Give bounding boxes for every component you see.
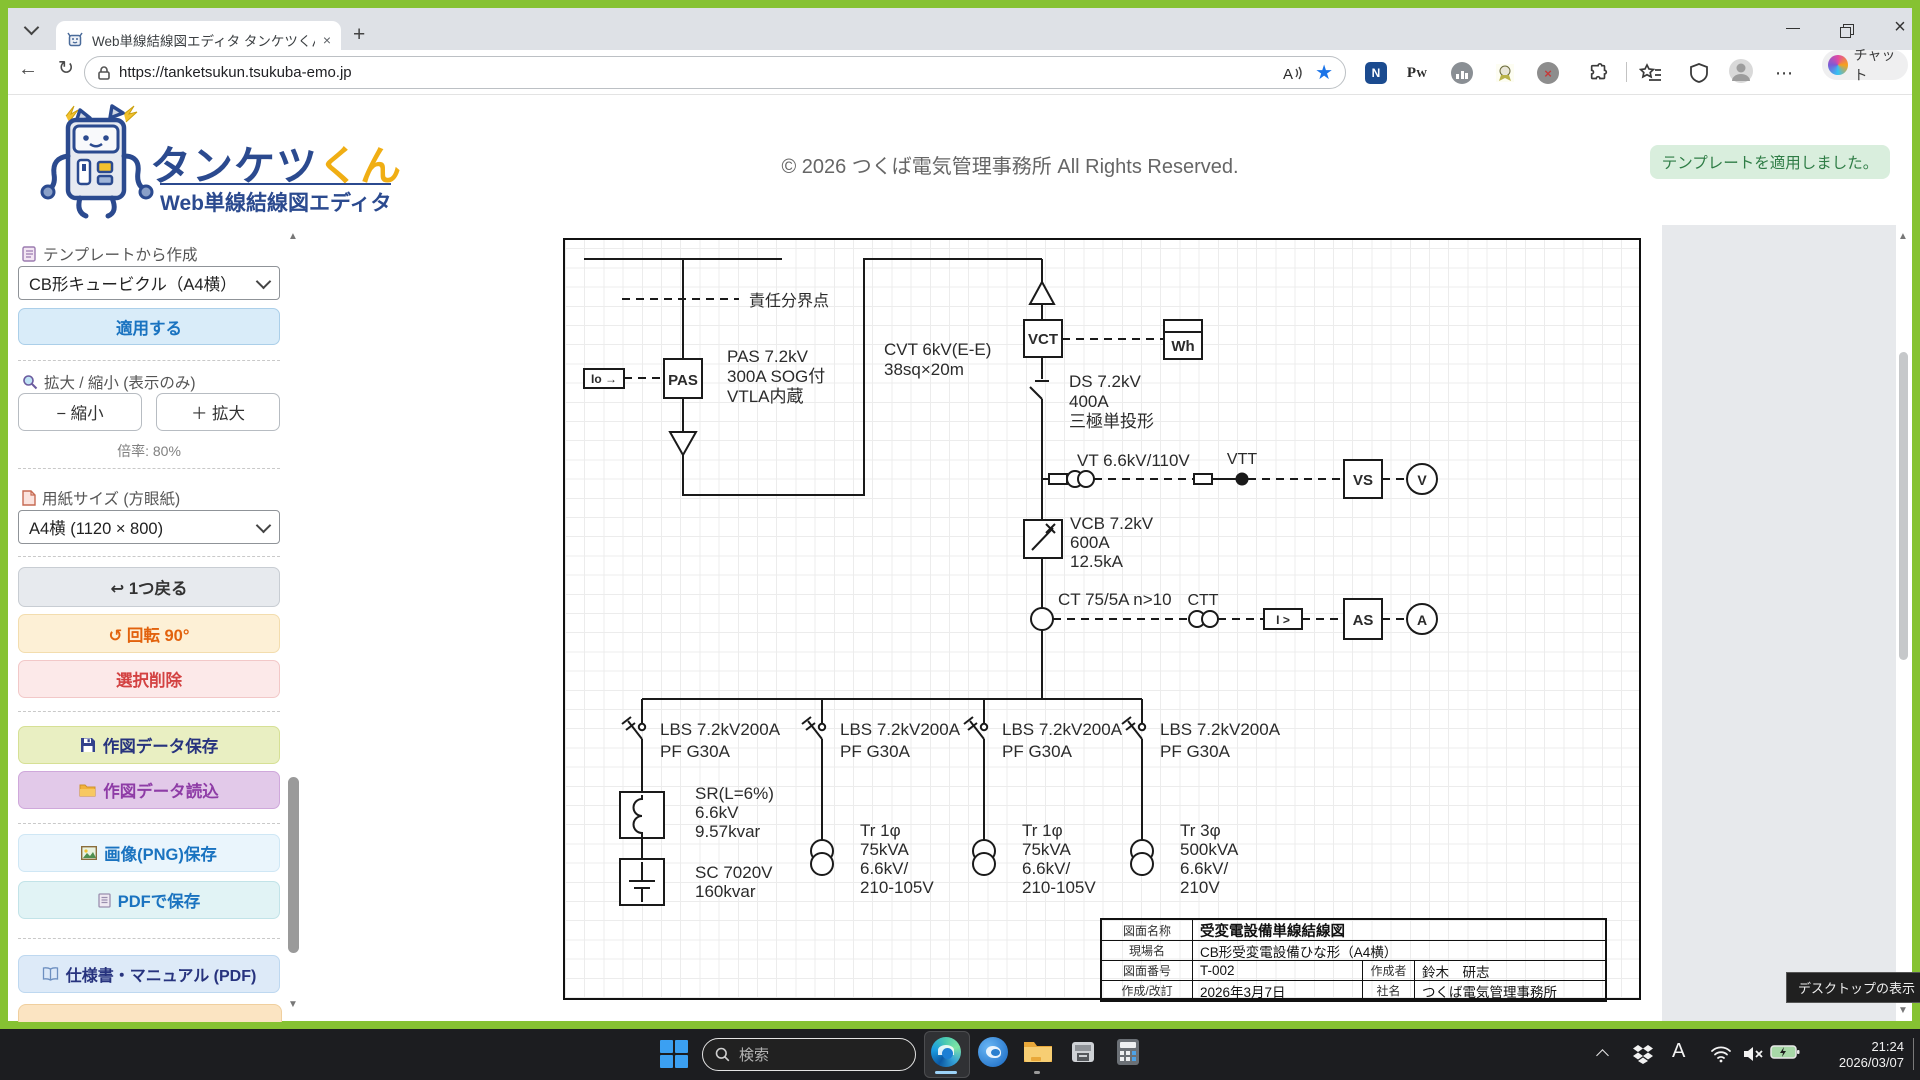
chevron-down-icon (256, 273, 272, 289)
clock-time: 21:24 (1812, 1039, 1904, 1055)
favorite-star-icon[interactable]: ★ (1315, 60, 1333, 85)
sc-spec: 160kvar (695, 882, 756, 901)
taskbar-thunderbird-icon[interactable] (978, 1037, 1008, 1067)
extensions-puzzle-icon[interactable] (1586, 60, 1612, 86)
drawing-title: 受変電設備単線結線図 (1192, 920, 1605, 940)
taskbar-calculator-icon[interactable] (1113, 1037, 1143, 1067)
magnifier-icon (22, 374, 38, 390)
tab-close-icon[interactable]: × (323, 32, 331, 48)
vcb-spec: VCB 7.2kV (1070, 514, 1154, 533)
pas-box-label: PAS (668, 372, 698, 389)
tr-spec: 6.6kV/ (1180, 859, 1228, 878)
lbs-label: LBS 7.2kV200A (660, 720, 781, 739)
canvas-outer-area (1662, 225, 1896, 1021)
divider (18, 468, 280, 469)
overcurrent-relay-label: I > (1276, 613, 1290, 627)
folder-icon (79, 783, 96, 797)
wifi-icon[interactable] (1710, 1045, 1732, 1068)
extension-blocker-icon[interactable]: × (1535, 60, 1561, 86)
ds-spec: 400A (1069, 392, 1109, 411)
url-text: https://tanketsukun.tsukuba-emo.jp (119, 64, 1281, 81)
zoom-section-label: 拡大 / 縮小 (表示のみ) (22, 371, 196, 393)
ds-spec: DS 7.2kV (1069, 372, 1141, 391)
title-block: 図面名称 受変電設備単線結線図 現場名 CB形受変電設備ひな形（A4横） 図面番… (1100, 918, 1607, 1002)
lbs-label: LBS 7.2kV200A (1002, 720, 1123, 739)
manual-button[interactable]: 仕様書・マニュアル (PDF) (18, 955, 280, 993)
minimize-button[interactable] (1770, 8, 1816, 48)
lock-icon (97, 65, 111, 81)
lbs-label: PF G30A (660, 742, 731, 761)
copyright-text: © 2026 つくば電気管理事務所 All Rights Reserved. (560, 150, 1460, 179)
vcb-spec: 600A (1070, 533, 1110, 552)
tab-title: Web単線結線図エディタ タンケツくん (92, 30, 315, 50)
tab-search-button[interactable] (18, 16, 44, 42)
battery-charging-icon[interactable] (1770, 1044, 1800, 1065)
template-doc-icon (22, 246, 37, 262)
lbs-label: PF G30A (1002, 742, 1073, 761)
copilot-icon (1828, 55, 1848, 75)
template-section-label: テンプレートから作成 (22, 243, 198, 265)
save-png-button[interactable]: 画像(PNG)保存 (18, 834, 280, 872)
paper-section-label: 用紙サイズ (方眼紙) (22, 487, 180, 509)
lbs-label: LBS 7.2kV200A (1160, 720, 1281, 739)
logo-mascot (28, 100, 158, 222)
paper-size-select[interactable]: A4横 (1120 × 800) (18, 510, 280, 544)
tr-spec: 6.6kV/ (860, 859, 908, 878)
show-desktop-tooltip: デスクトップの表示 (1786, 972, 1920, 1003)
diagram-canvas[interactable]: 責任分界点 Io → PAS PAS 7.2kV 300A SOG付 VTLA内… (563, 238, 1641, 1000)
cvt-spec: 38sq×20m (884, 360, 964, 379)
divider (18, 556, 280, 557)
image-icon (81, 846, 97, 860)
tr-spec: 210V (1180, 878, 1220, 897)
toolbar-divider (1626, 62, 1627, 82)
tr-spec: 210-105V (1022, 878, 1096, 897)
pas-spec: VTLA内蔵 (727, 387, 804, 406)
apply-template-button[interactable]: 適用する (18, 308, 280, 345)
ime-mode-indicator[interactable]: A (1672, 1040, 1685, 1063)
tr-spec: 75kVA (1022, 840, 1071, 859)
restore-button[interactable] (1825, 8, 1871, 48)
rotate-button[interactable]: ↺ 回転 90° (18, 614, 280, 653)
screen: Web単線結線図エディタ タンケツくん × + × ← ↻ https://ta… (0, 0, 1920, 1080)
settings-ellipsis-icon[interactable]: ⋯ (1772, 60, 1798, 86)
paper-icon (22, 490, 36, 506)
extension-password-icon[interactable]: N (1363, 60, 1389, 86)
vct-box-label: VCT (1028, 331, 1058, 348)
partial-bottom-button[interactable] (18, 1004, 282, 1022)
pas-spec: PAS 7.2kV (727, 347, 809, 366)
show-desktop-divider[interactable] (1913, 1038, 1914, 1070)
divider (18, 938, 280, 939)
book-icon (42, 967, 59, 981)
vcb-spec: 12.5kA (1070, 552, 1124, 571)
zoom-level-text: 倍率: 80% (18, 441, 280, 461)
chevron-down-icon (23, 19, 39, 35)
copilot-button[interactable]: チャット (1822, 50, 1908, 80)
taskbar-search-input[interactable]: 検索 (702, 1038, 916, 1071)
start-button[interactable] (660, 1040, 688, 1068)
taskbar-clock[interactable]: 21:24 2026/03/07 (1812, 1039, 1904, 1071)
pdf-doc-icon (98, 893, 111, 908)
lbs-label: PF G30A (840, 742, 911, 761)
title-block-label: 図面名称 (1102, 920, 1192, 940)
main-scroll-down-icon[interactable]: ▼ (1898, 1006, 1908, 1016)
load-data-button[interactable]: 作図データ読込 (18, 771, 280, 809)
cvt-spec: CVT 6kV(E-E) (884, 340, 991, 359)
logo-subtitle: Web単線結線図エディタ (160, 183, 391, 217)
title-block-label: 作成/改訂 (1102, 980, 1192, 1000)
voltmeter-label: V (1417, 472, 1427, 488)
single-line-diagram: 責任分界点 Io → PAS PAS 7.2kV 300A SOG付 VTLA内… (565, 240, 1639, 998)
undo-button[interactable]: ↩ 1つ戻る (18, 567, 280, 607)
edge-running-indicator (935, 1071, 957, 1074)
template-select[interactable]: CB形キュービクル（A4横） (18, 266, 280, 300)
tr-spec: 6.6kV/ (1022, 859, 1070, 878)
taskbar-printer-icon[interactable] (1068, 1037, 1098, 1067)
tr-spec: 500kVA (1180, 840, 1239, 859)
tr-spec: Tr 1φ (860, 821, 901, 840)
browser-essentials-shield-icon[interactable] (1686, 60, 1712, 86)
tr-spec: 75kVA (860, 840, 909, 859)
pas-spec: 300A SOG付 (727, 367, 825, 386)
ctt-label: CTT (1187, 592, 1218, 609)
boundary-label: 責任分界点 (749, 292, 829, 310)
sr-spec: 6.6kV (695, 803, 739, 822)
sidebar-scroll-down-icon[interactable]: ▼ (288, 1000, 298, 1010)
tr-spec: Tr 3φ (1180, 821, 1221, 840)
chevron-down-icon (256, 517, 272, 533)
taskbar-edge-icon[interactable] (931, 1037, 961, 1067)
tr-spec: Tr 1φ (1022, 821, 1063, 840)
lbs-label: LBS 7.2kV200A (840, 720, 961, 739)
vtt-label: VTT (1227, 451, 1257, 468)
tab-strip: Web単線結線図エディタ タンケツくん × + × (8, 8, 1912, 50)
revision-date: 2026年3月7日 (1192, 980, 1362, 1000)
refresh-button[interactable]: ↻ (58, 59, 74, 79)
new-tab-button[interactable]: + (353, 24, 365, 46)
main-scroll-up-icon[interactable]: ▲ (1898, 232, 1908, 242)
volume-muted-icon[interactable] (1742, 1045, 1764, 1068)
main-scrollbar-thumb[interactable] (1899, 352, 1908, 660)
save-pdf-button[interactable]: PDFで保存 (18, 881, 280, 919)
sc-spec: SC 7020V (695, 863, 773, 882)
read-aloud-icon[interactable]: A (1281, 64, 1303, 82)
tab-favicon-robot-icon (66, 31, 84, 49)
profile-avatar[interactable] (1728, 58, 1754, 84)
title-block-label: 作成者 (1362, 960, 1414, 980)
sidebar-scrollbar-thumb[interactable] (288, 777, 299, 953)
extension-pw-icon[interactable]: PW (1404, 60, 1430, 86)
zoom-in-button[interactable]: ＋ 拡大 (156, 393, 280, 431)
search-icon (715, 1047, 730, 1062)
vt-label: VT 6.6kV/110V (1077, 451, 1190, 470)
toast-message: テンプレートを適用しました。 (1650, 145, 1890, 179)
copilot-label: チャット (1854, 45, 1909, 85)
divider (18, 823, 280, 824)
lbs-label: PF G30A (1160, 742, 1231, 761)
extension-stats-icon[interactable] (1449, 60, 1475, 86)
title-block-label: 現場名 (1102, 940, 1192, 960)
sr-spec: SR(L=6%) (695, 784, 774, 803)
zoom-out-button[interactable]: − 縮小 (18, 393, 142, 431)
title-block-label: 図面番号 (1102, 960, 1192, 980)
company-name: つくば電気管理事務所 (1414, 980, 1605, 1000)
title-block-label: 社名 (1362, 980, 1414, 1000)
vs-box-label: VS (1353, 472, 1373, 489)
sidebar-scroll-up-icon[interactable]: ▲ (288, 232, 298, 242)
favorites-list-icon[interactable] (1638, 60, 1664, 86)
address-bar[interactable]: https://tanketsukun.tsukuba-emo.jp A ★ (84, 56, 1346, 89)
delete-selection-button[interactable]: 選択削除 (18, 660, 280, 698)
ct-label: CT 75/5A n>10 (1058, 590, 1172, 609)
back-button[interactable]: ← (18, 59, 38, 80)
site-name: CB形受変電設備ひな形（A4横） (1192, 940, 1605, 960)
sr-spec: 9.57kvar (695, 822, 761, 841)
taskbar-explorer-icon[interactable] (1023, 1039, 1053, 1065)
divider (18, 360, 280, 361)
floppy-icon (80, 737, 96, 753)
tr-spec: 210-105V (860, 878, 934, 897)
drawing-number: T-002 (1192, 960, 1362, 980)
io-relay-label: Io → (591, 372, 617, 386)
ds-spec: 三極単投形 (1069, 412, 1154, 431)
save-data-button[interactable]: 作図データ保存 (18, 726, 280, 764)
close-button[interactable]: × (1880, 16, 1920, 44)
ammeter-label: A (1417, 612, 1427, 628)
search-placeholder: 検索 (739, 1044, 769, 1065)
tray-chevron-up-icon[interactable] (1598, 1047, 1610, 1059)
as-box-label: AS (1353, 612, 1374, 629)
divider (18, 711, 280, 712)
clock-date: 2026/03/07 (1812, 1055, 1904, 1071)
author-name: 鈴木 研志 (1414, 960, 1605, 980)
svg-text:A: A (1283, 66, 1293, 82)
extension-badge-icon[interactable] (1492, 60, 1518, 86)
wh-meter-label: Wh (1171, 338, 1194, 355)
explorer-running-indicator (1034, 1071, 1040, 1074)
tray-dropbox-icon[interactable] (1632, 1043, 1654, 1070)
